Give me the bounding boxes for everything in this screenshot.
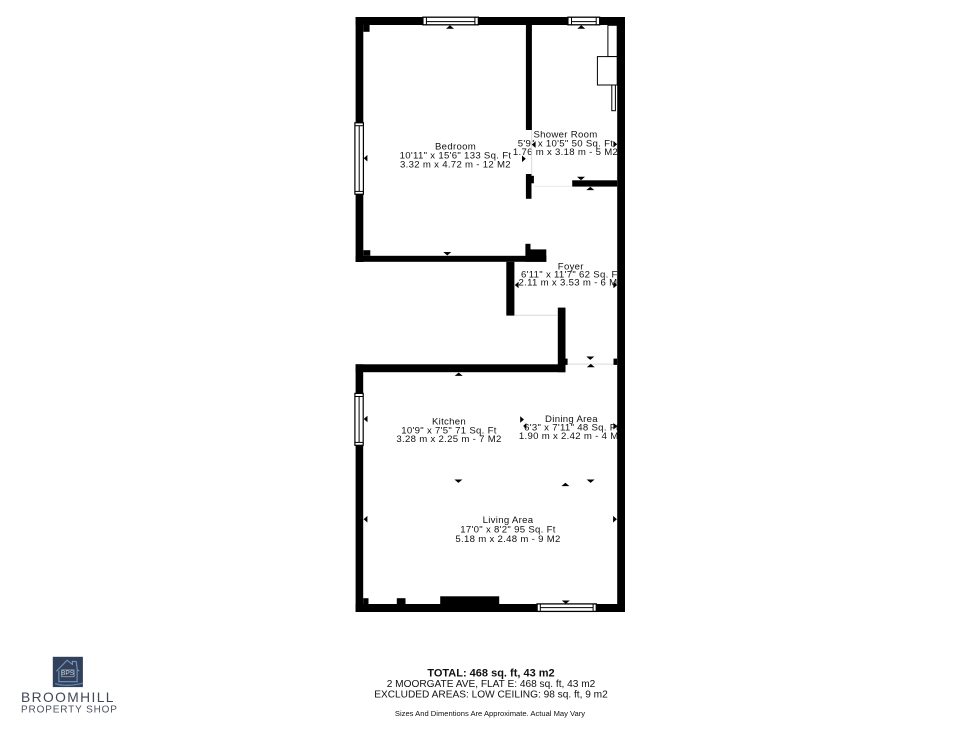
svg-text:1.76 m x 3.18 m - 5 M2: 1.76 m x 3.18 m - 5 M2 (513, 147, 618, 158)
svg-text:TOTAL: 468 sq. ft, 43 m2: TOTAL: 468 sq. ft, 43 m2 (427, 668, 554, 680)
svg-text:Sizes And Dimentions Are Appro: Sizes And Dimentions Are Approximate. Ac… (395, 709, 585, 718)
svg-text:BROOMHILL: BROOMHILL (21, 690, 115, 705)
svg-text:EXCLUDED AREAS: LOW CEILING: 9: EXCLUDED AREAS: LOW CEILING: 98 sq. ft, … (374, 690, 608, 701)
svg-text:2 MOORGATE AVE, FLAT E: 468 sq: 2 MOORGATE AVE, FLAT E: 468 sq. ft, 43 m… (387, 679, 596, 690)
svg-text:5.18 m x 2.48 m - 9 M2: 5.18 m x 2.48 m - 9 M2 (455, 534, 560, 545)
svg-text:3.32 m x 4.72 m - 12 M2: 3.32 m x 4.72 m - 12 M2 (400, 160, 511, 171)
svg-text:3.28 m x 2.25 m - 7 M2: 3.28 m x 2.25 m - 7 M2 (396, 434, 501, 445)
svg-text:1.90 m x 2.42 m - 4 M2: 1.90 m x 2.42 m - 4 M2 (519, 431, 624, 442)
svg-text:BPS: BPS (61, 670, 75, 677)
svg-text:PROPERTY SHOP: PROPERTY SHOP (21, 705, 118, 716)
svg-text:2.11 m x 3.53 m - 6 M2: 2.11 m x 3.53 m - 6 M2 (519, 278, 624, 289)
